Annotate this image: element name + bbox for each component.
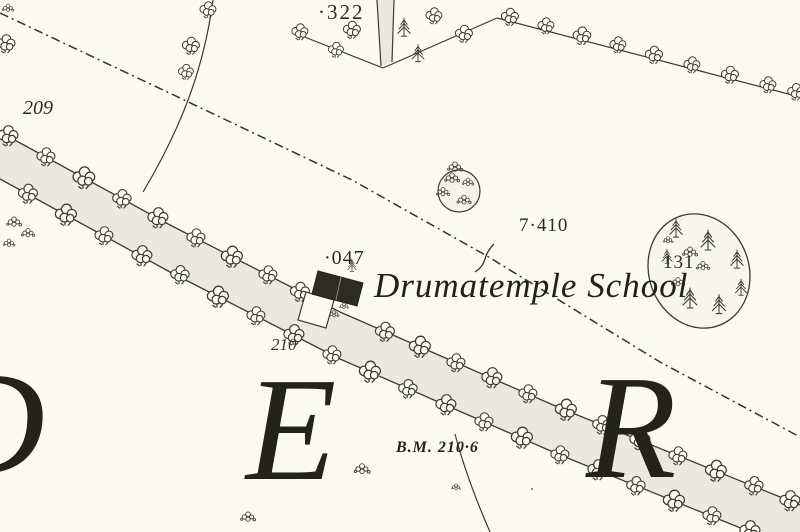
school-name-label: Drumatemple School [374, 268, 688, 303]
spot-height-322-label: ·322 [318, 2, 365, 23]
scrub-enclosure [436, 162, 480, 212]
map-canvas[interactable]: ·322 209 ·047 Drumatemple School 7·410 1… [0, 0, 800, 532]
benchmark-label: B.M. 210·6 [396, 440, 479, 456]
townland-letter-e: E [246, 356, 336, 504]
hedgerow-tree-row [501, 8, 800, 100]
parcel-209-label: 209 [23, 98, 53, 118]
townland-letter-r: R [586, 354, 676, 502]
lane [377, 0, 394, 66]
parcel-047-label: ·047 [324, 248, 365, 268]
spot-height-7410-label: 7·410 [519, 216, 568, 235]
townland-letter-d: D [0, 350, 45, 498]
scattered-trees [0, 2, 472, 80]
parcel-131-label: 131 [663, 253, 695, 272]
